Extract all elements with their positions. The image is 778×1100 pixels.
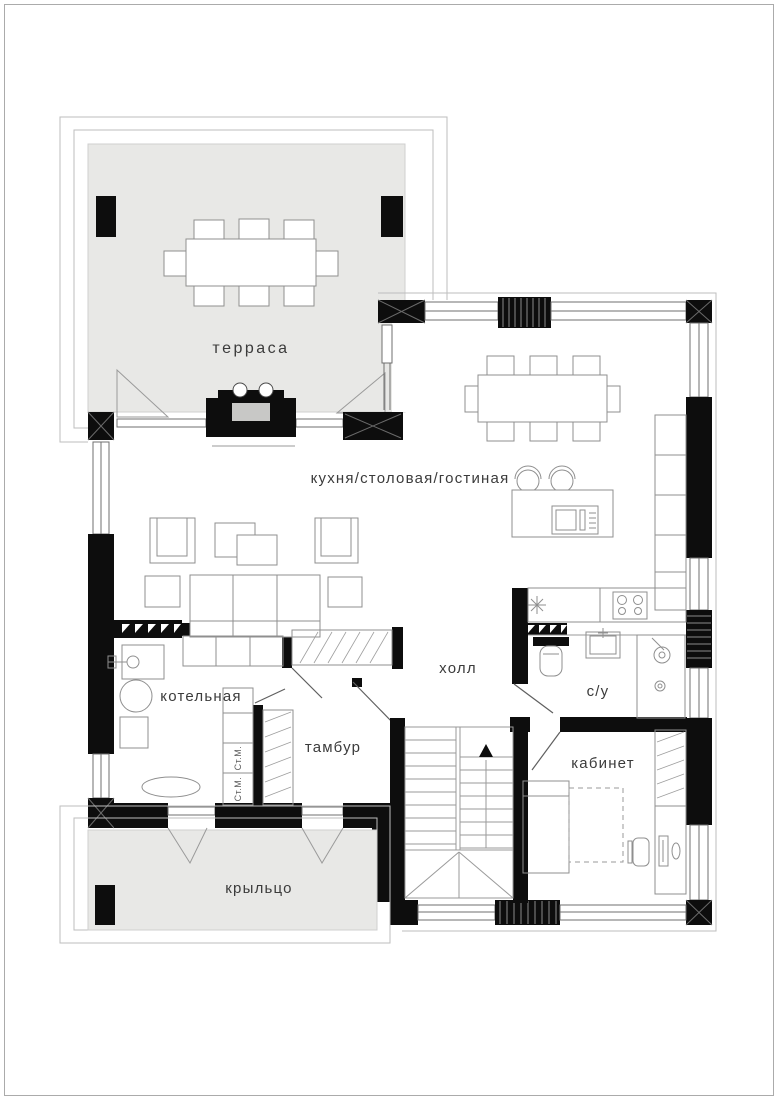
table-top: [186, 239, 316, 286]
chair: [530, 422, 557, 441]
wall-segment: [114, 803, 168, 828]
chair: [607, 386, 620, 412]
wall-segment: [512, 588, 528, 684]
wall-segment: [88, 534, 114, 640]
wall-segment: [390, 900, 418, 925]
door-frame: [168, 807, 215, 815]
chair: [284, 286, 314, 306]
wall-pier-hatched: [498, 297, 551, 328]
wall-segment: [686, 397, 712, 558]
chair: [164, 251, 186, 276]
table-top: [478, 375, 607, 422]
chair: [284, 220, 314, 240]
chair: [573, 356, 600, 375]
side-table: [145, 576, 180, 607]
terrace-room: терраса: [60, 117, 450, 446]
chair: [465, 386, 478, 412]
hall-area: холл: [439, 660, 477, 677]
wall-segment: [215, 803, 302, 828]
floor-plan-drawing: терраса: [0, 0, 778, 1100]
terrace-column: [381, 196, 403, 237]
wall-segment: [88, 640, 114, 754]
floor-plan-page: терраса: [0, 0, 778, 1100]
wall-pier-hatched: [686, 610, 712, 668]
side-table: [328, 577, 362, 607]
hall-label: холл: [439, 660, 477, 677]
stair-wall: [390, 718, 405, 902]
chair: [573, 422, 600, 441]
chair: [239, 219, 269, 239]
chair: [194, 220, 224, 240]
firebox: [232, 403, 270, 421]
wall-segment: [253, 705, 263, 805]
kitchen-label: кухня/столовая/гостиная: [311, 470, 510, 487]
chair: [487, 422, 514, 441]
dining-table: [465, 356, 620, 441]
study-label: кабинет: [571, 755, 635, 772]
wall-pier-hatched: [495, 900, 560, 925]
washer-label: Ст.М.: [233, 746, 243, 771]
radiator: [523, 623, 567, 635]
chimney-pipe: [259, 383, 273, 397]
chair: [239, 286, 269, 306]
chair: [530, 356, 557, 375]
radiator: [114, 620, 182, 638]
washer-label: Ст.М.: [233, 777, 243, 802]
porch-column: [95, 885, 115, 925]
bar-stool: [551, 470, 573, 492]
sofa: [190, 575, 320, 637]
chair: [316, 251, 338, 276]
chair: [194, 286, 224, 306]
boiler-label: котельная: [160, 688, 241, 705]
bathroom-label: с/у: [587, 683, 610, 700]
bar-stool: [517, 470, 539, 492]
stair-wall: [513, 718, 528, 903]
coffee-table: [237, 535, 277, 565]
door-frame: [302, 807, 343, 815]
wall-segment: [392, 627, 403, 669]
terrace-label: терраса: [212, 340, 289, 357]
chimney-pipe: [233, 383, 247, 397]
window: [382, 325, 392, 363]
terrace-column: [96, 196, 116, 237]
fireplace: [206, 383, 296, 437]
wall-segment: [686, 718, 712, 825]
chair: [487, 356, 514, 375]
vestibule-label: тамбур: [305, 739, 361, 756]
porch-label: крыльцо: [225, 880, 292, 897]
